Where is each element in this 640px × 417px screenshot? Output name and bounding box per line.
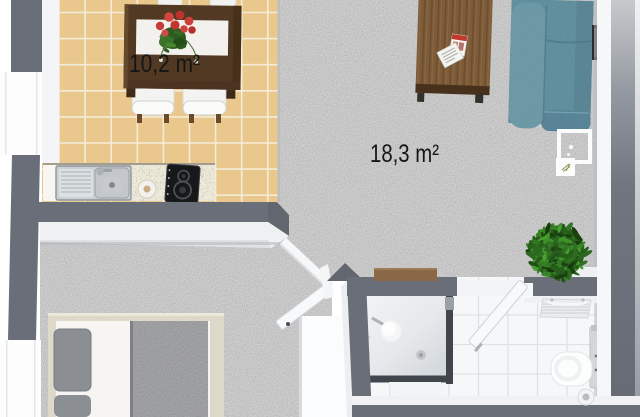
svg-text:18,3 m²: 18,3 m²	[370, 140, 439, 168]
svg-text:10,2 m²: 10,2 m²	[129, 50, 200, 78]
